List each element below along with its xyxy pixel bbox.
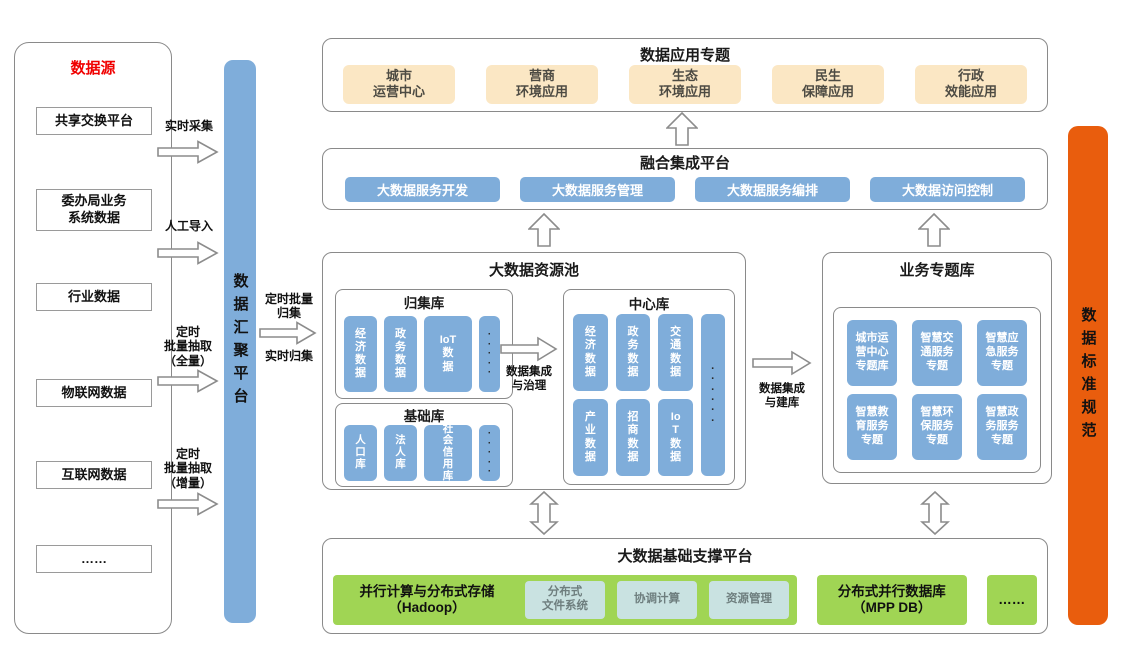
smart-emergency-topic-box: 智慧应急服务专题 bbox=[977, 320, 1027, 386]
resource-pool-title: 大数据资源池 bbox=[323, 259, 745, 280]
app-topics-row: 城市 运营中心 营商 环境应用 生态 环境应用 民生 保障应用 行政 效能应用 bbox=[343, 65, 1027, 104]
service-orchestration-box: 大数据服务编排 bbox=[695, 177, 850, 202]
population-db-box: 人 口 库 bbox=[344, 425, 377, 481]
resource-mgmt-box: 资源管理 bbox=[709, 581, 789, 619]
datasource-item-shared-exchange: 共享交换平台 bbox=[36, 107, 152, 135]
architecture-diagram: 数据源 共享交换平台 委办局业务 系统数据 行业数据 物联网数据 互联网数据 …… bbox=[0, 0, 1146, 652]
smart-gov-topic-box: 智慧政务服务专题 bbox=[977, 394, 1027, 460]
investment-data-box: 招 商 数 据 bbox=[616, 399, 651, 476]
right-arrow-icon bbox=[500, 336, 558, 362]
aggregation-platform-bar: 数据汇聚平台 bbox=[224, 60, 256, 623]
mpp-db-label: 分布式并行数据库 （MPP DB） bbox=[838, 584, 946, 616]
integration-title: 融合集成平台 bbox=[323, 152, 1047, 173]
up-arrow-icon bbox=[918, 213, 950, 247]
gov-data-box: 政 务 数 据 bbox=[384, 316, 417, 392]
up-arrow-icon bbox=[666, 112, 698, 146]
hadoop-box: 并行计算与分布式存储 （Hadoop） 分布式 文件系统 协调计算 资源管理 bbox=[333, 575, 797, 625]
data-standard-label: 数据标准规范 bbox=[1078, 307, 1099, 445]
base-library-row: 人 口 库 法 人 库 社 会 信 用 库 · · · · · bbox=[344, 425, 504, 481]
access-control-box: 大数据访问控制 bbox=[870, 177, 1025, 202]
right-arrow-icon bbox=[157, 241, 219, 265]
topic-library-inner-panel: 城市运营中心专题库 智慧交通服务专题 智慧应急服务专题 智慧教育服务专题 智慧环… bbox=[833, 307, 1041, 473]
mpp-db-box: 分布式并行数据库 （MPP DB） bbox=[817, 575, 967, 625]
datasource-item-bureau-systems: 委办局业务 系统数据 bbox=[36, 189, 152, 231]
up-down-arrow-icon bbox=[920, 491, 950, 535]
collect-library-title: 归集库 bbox=[336, 292, 512, 312]
datasource-item-iot: 物联网数据 bbox=[36, 379, 152, 407]
support-platform-title: 大数据基础支撑平台 bbox=[323, 545, 1047, 566]
service-dev-box: 大数据服务开发 bbox=[345, 177, 500, 202]
datasource-item-industry: 行业数据 bbox=[36, 283, 152, 311]
traffic-data-box: 交 通 数 据 bbox=[658, 314, 693, 391]
economy-data-box: 经 济 数 据 bbox=[344, 316, 377, 392]
integration-row: 大数据服务开发 大数据服务管理 大数据服务编排 大数据访问控制 bbox=[345, 177, 1025, 202]
center-library-grid: 经 济 数 据 政 务 数 据 交 通 数 据 产 业 数 据 招 商 数 据 … bbox=[573, 314, 725, 476]
ellipsis-dots-box: · · · · · · bbox=[701, 314, 725, 476]
flow-label-build: 数据集成 与建库 bbox=[746, 383, 818, 411]
app-topics-title: 数据应用专题 bbox=[323, 44, 1047, 65]
industry-data-box: 产 业 数 据 bbox=[573, 399, 608, 476]
smart-traffic-topic-box: 智慧交通服务专题 bbox=[912, 320, 962, 386]
app-topics-panel: 数据应用专题 城市 运营中心 营商 环境应用 生态 环境应用 民生 保障应用 行… bbox=[322, 38, 1048, 112]
flow-label-batch-gather: 定时批量 归集 bbox=[256, 292, 322, 321]
right-arrow-icon bbox=[752, 350, 812, 376]
iot-data-box: IoT 数 据 bbox=[424, 316, 472, 392]
base-library-title: 基础库 bbox=[336, 405, 512, 425]
topic-library-title: 业务专题库 bbox=[823, 259, 1051, 280]
center-library-panel: 中心库 经 济 数 据 政 务 数 据 交 通 数 据 产 业 数 据 招 商 … bbox=[563, 289, 735, 485]
economy-data-box: 经 济 数 据 bbox=[573, 314, 608, 391]
topic-grid: 城市运营中心专题库 智慧交通服务专题 智慧应急服务专题 智慧教育服务专题 智慧环… bbox=[847, 320, 1027, 460]
ellipsis-dots-box: · · · · · bbox=[479, 425, 500, 481]
up-arrow-icon bbox=[528, 213, 560, 247]
right-arrow-icon bbox=[259, 321, 317, 345]
smart-environment-topic-box: 智慧环保服务专题 bbox=[912, 394, 962, 460]
hadoop-label: 并行计算与分布式存储 （Hadoop） bbox=[341, 584, 513, 616]
service-mgmt-box: 大数据服务管理 bbox=[520, 177, 675, 202]
flow-label-batch-full: 定时 批量抽取 （全量） bbox=[148, 325, 228, 368]
aggregation-platform-label: 数据汇聚平台 bbox=[230, 273, 251, 411]
datasource-title: 数据源 bbox=[15, 57, 171, 78]
center-library-title: 中心库 bbox=[564, 293, 734, 313]
app-topic-city-operation: 城市 运营中心 bbox=[343, 65, 455, 104]
data-standard-bar: 数据标准规范 bbox=[1068, 126, 1108, 625]
right-arrow-icon bbox=[157, 140, 219, 164]
support-more-box: …… bbox=[987, 575, 1037, 625]
flow-label-realtime-collect: 实时采集 bbox=[154, 119, 224, 133]
integration-panel: 融合集成平台 大数据服务开发 大数据服务管理 大数据服务编排 大数据访问控制 bbox=[322, 148, 1048, 210]
right-arrow-icon bbox=[157, 492, 219, 516]
flow-label-manual-import: 人工导入 bbox=[154, 219, 224, 233]
gov-data-box: 政 务 数 据 bbox=[616, 314, 651, 391]
collect-library-panel: 归集库 经 济 数 据 政 务 数 据 IoT 数 据 · · · · · bbox=[335, 289, 513, 399]
app-topic-eco-env: 生态 环境应用 bbox=[629, 65, 741, 104]
app-topic-business-env: 营商 环境应用 bbox=[486, 65, 598, 104]
social-credit-db-box: 社 会 信 用 库 bbox=[424, 425, 472, 481]
right-arrow-icon bbox=[157, 369, 219, 393]
smart-education-topic-box: 智慧教育服务专题 bbox=[847, 394, 897, 460]
iot-data-box: Io T 数 据 bbox=[658, 399, 693, 476]
datasource-item-more: …… bbox=[36, 545, 152, 573]
app-topic-admin-efficiency: 行政 效能应用 bbox=[915, 65, 1027, 104]
support-platform-row: 并行计算与分布式存储 （Hadoop） 分布式 文件系统 协调计算 资源管理 分… bbox=[333, 575, 1037, 625]
coordinate-compute-box: 协调计算 bbox=[617, 581, 697, 619]
collect-library-row: 经 济 数 据 政 务 数 据 IoT 数 据 · · · · · bbox=[344, 316, 504, 392]
flow-label-batch-incremental: 定时 批量抽取 （增量） bbox=[148, 447, 228, 490]
support-platform-panel: 大数据基础支撑平台 并行计算与分布式存储 （Hadoop） 分布式 文件系统 协… bbox=[322, 538, 1048, 634]
distributed-fs-box: 分布式 文件系统 bbox=[525, 581, 605, 619]
legal-entity-db-box: 法 人 库 bbox=[384, 425, 417, 481]
support-more-label: …… bbox=[998, 592, 1025, 608]
up-down-arrow-icon bbox=[529, 491, 559, 535]
datasource-item-internet: 互联网数据 bbox=[36, 461, 152, 489]
flow-label-realtime-gather: 实时归集 bbox=[256, 349, 322, 363]
city-operation-topic-box: 城市运营中心专题库 bbox=[847, 320, 897, 386]
topic-library-panel: 业务专题库 城市运营中心专题库 智慧交通服务专题 智慧应急服务专题 智慧教育服务… bbox=[822, 252, 1052, 484]
flow-label-governance: 数据集成 与治理 bbox=[494, 366, 564, 394]
base-library-panel: 基础库 人 口 库 法 人 库 社 会 信 用 库 · · · · · bbox=[335, 403, 513, 487]
app-topic-livelihood: 民生 保障应用 bbox=[772, 65, 884, 104]
